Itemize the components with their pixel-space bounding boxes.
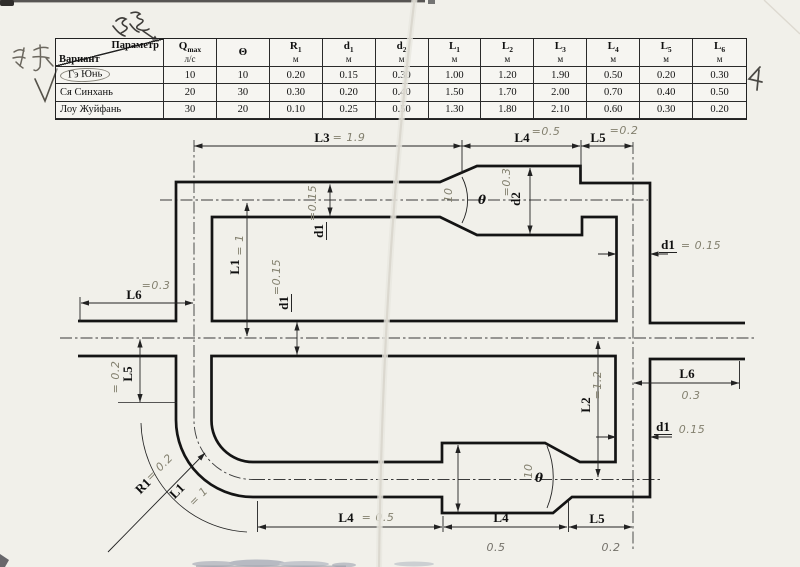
table-value-r1-c3: 0.20 [323,84,376,101]
column-header-Θ: Θ [217,39,270,67]
table-value-r0-c1: 10 [217,67,270,84]
dim-label-l5-left: L5 [120,366,135,382]
dim-label-l1-bend: L1 [166,480,187,501]
hw-value-l2: =1.2 [591,371,604,400]
hw-value-l6-right: 0.3 [682,389,701,402]
column-header-L6: L6м [693,39,746,67]
dim-label-l5-bottom: L5 [589,511,605,526]
theta-symbol-top: θ [478,193,486,207]
table-value-r1-c0: 20 [164,84,217,101]
table-value-r1-c1: 30 [217,84,270,101]
table-value-r1-c8: 0.70 [587,84,640,101]
checkmark [35,69,57,101]
hw-value-d1-top: =0.15 [306,185,319,221]
table-value-r1-c7: 2.00 [534,84,587,101]
table-value-r1-c4: 0.40 [376,84,429,101]
table-value-r2-c1: 20 [217,102,270,119]
column-header-L2: L2м [481,39,534,67]
column-header-d2: d2м [376,39,429,67]
table-value-r0-c6: 1.20 [481,67,534,84]
variant-name-row-0: Гэ Юнь [56,67,164,84]
table-value-r0-c4: 0.30 [376,67,429,84]
table-value-r2-c7: 2.10 [534,102,587,119]
hw-value-l4-top: =0.5 [532,125,561,138]
dim-label-l3: L3 [314,130,330,145]
table-value-r2-c8: 0.60 [587,102,640,119]
lower-island [212,356,616,462]
bottom-ink-smudges [192,560,434,567]
table-corner-cell: Параметр Вариант [56,39,164,67]
dim-label-d1-top: d1 [311,224,326,238]
table-value-r2-c4: 0.50 [376,102,429,119]
hw-value-d1-right-lower: 0.15 [679,423,706,436]
hw-value-l1-bend: = 1 [186,484,210,508]
hw-value-d1-mid: =0.15 [270,259,283,295]
table-value-r0-c0: 10 [164,67,217,84]
variant-name-row-2: Лоу Жуйфань [56,102,164,119]
table-value-r1-c9: 0.40 [640,84,693,101]
column-header-d1: d1м [323,39,376,67]
dim-label-l5-top: L5 [590,130,606,145]
theta-symbol-bottom: θ [535,471,543,485]
dim-label-l4-bottom-mid: L4 [493,510,509,525]
corner-label-parameter: Параметр [112,40,159,51]
table-value-r2-c9: 0.30 [640,102,693,119]
corner-mark [749,67,762,90]
dim-label-l6-left: L6 [126,287,142,302]
hw-theta-top: 10 [442,188,455,203]
hw-value-l1-top: = 1 [233,234,246,255]
table-value-r2-c3: 0.25 [323,102,376,119]
table-value-r2-c0: 30 [164,102,217,119]
outer-upper-wall [78,166,745,323]
table-value-r2-c2: 0.10 [270,102,323,119]
table-value-r0-c3: 0.15 [323,67,376,84]
dim-label-l1-top: L1 [227,259,242,274]
hw-value-l5-top: =0.2 [610,124,639,137]
hw-value-l6-left: =0.3 [142,279,171,292]
column-header-R1: R1м [270,39,323,67]
dim-label-l4-top: L4 [514,130,530,145]
hw-value-l4-bottom-mid: 0.5 [487,541,506,554]
table-value-r2-c10: 0.20 [693,102,746,119]
pipe-walls [78,166,745,513]
hw-value-l3: = 1.9 [333,131,366,144]
table-value-r0-c9: 0.20 [640,67,693,84]
table-value-r1-c2: 0.30 [270,84,323,101]
table-value-r2-c6: 1.80 [481,102,534,119]
hw-theta-bottom: 10 [522,464,535,479]
column-header-L1: L1м [429,39,482,67]
dim-label-l4-bottom-left: L4 [338,510,354,525]
chinese-note-left [13,45,53,71]
column-header-L4: L4м [587,39,640,67]
table-value-r0-c2: 0.20 [270,67,323,84]
corner-label-variant: Вариант [59,54,100,65]
variant-name-row-1: Ся Синхань [56,84,164,101]
column-header-L3: L3м [534,39,587,67]
variants-table: Параметр Вариант Qmaxл/сΘR1мd1мd2мL1мL2м… [55,38,747,120]
table-value-r1-c10: 0.50 [693,84,746,101]
dim-label-d1-mid: d1 [276,296,291,310]
dim-label-l6-right: L6 [679,366,695,381]
table-value-r1-c6: 1.70 [481,84,534,101]
scanned-page: L3 = 1.9 L4 =0.5 L5 =0.2 L6 =0.3 L5 = 0.… [0,0,800,567]
column-header-L5: L5м [640,39,693,67]
column-header-Qmax: Qmaxл/с [164,39,217,67]
hw-value-r1: = 0.2 [143,451,175,483]
hw-value-d2-top: =0.3 [500,168,513,197]
hw-value-l5-bottom: 0.2 [602,541,621,554]
dim-label-d1-right-lower: d1 [656,419,670,434]
hw-value-l4-bottom-left: = 0.5 [362,511,395,524]
table-value-r2-c5: 1.30 [429,102,482,119]
table-value-r0-c8: 0.50 [587,67,640,84]
table-value-r0-c5: 1.00 [429,67,482,84]
chinese-note-top [113,12,156,40]
table-value-r1-c5: 1.50 [429,84,482,101]
centerlines [60,140,757,552]
table-value-r0-c10: 0.30 [693,67,746,84]
dim-label-d1-right-upper: d1 [661,237,675,252]
hw-value-d1-right-upper: = 0.15 [681,239,721,252]
hw-value-l5-left: = 0.2 [109,361,122,394]
dimension-labels: L3 = 1.9 L4 =0.5 L5 =0.2 L6 =0.3 L5 = 0.… [109,124,721,554]
table-value-r0-c7: 1.90 [534,67,587,84]
